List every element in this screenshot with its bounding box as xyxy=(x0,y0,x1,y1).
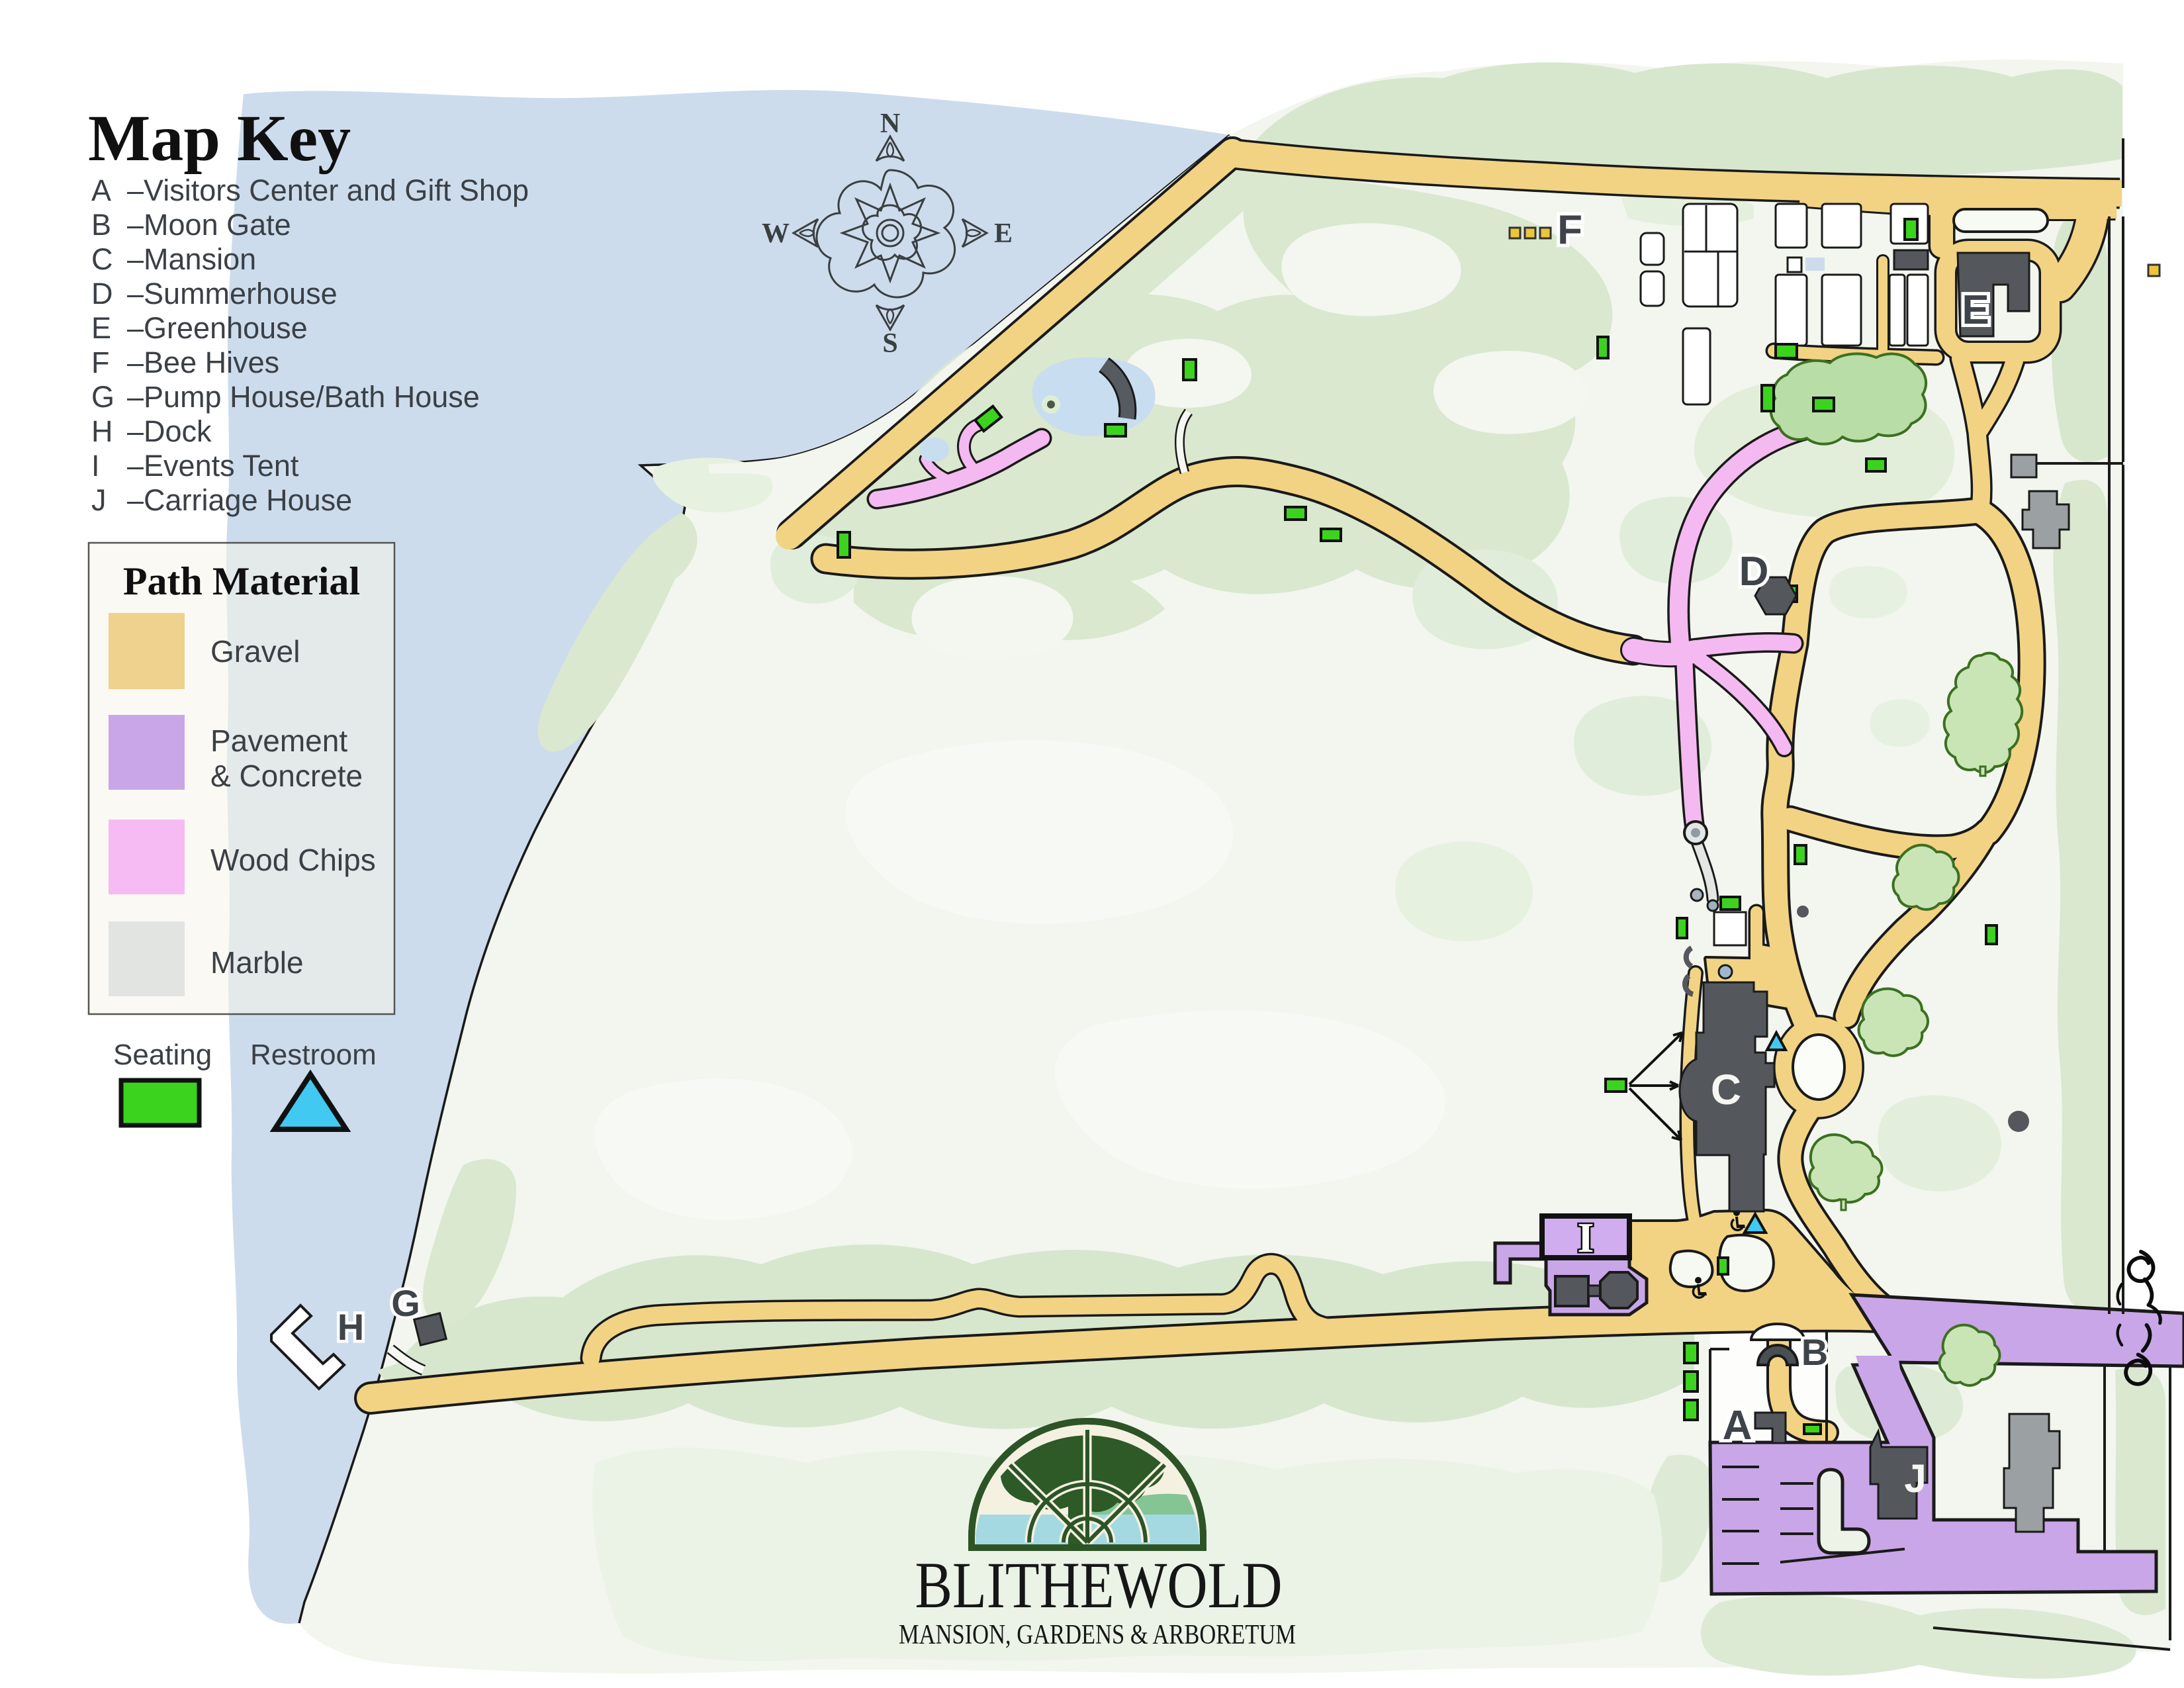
svg-text:Map Key: Map Key xyxy=(88,101,351,175)
svg-text:H: H xyxy=(338,1306,364,1348)
svg-text:–Summerhouse: –Summerhouse xyxy=(127,277,338,310)
svg-text:G: G xyxy=(91,380,114,414)
svg-text:–Mansion: –Mansion xyxy=(127,242,256,276)
svg-text:E: E xyxy=(1962,287,1989,333)
svg-text:–Moon Gate: –Moon Gate xyxy=(127,208,291,242)
svg-text:Gravel: Gravel xyxy=(210,634,300,669)
svg-text:–Dock: –Dock xyxy=(127,414,212,448)
svg-text:C: C xyxy=(91,242,113,276)
svg-text:A: A xyxy=(1723,1403,1752,1448)
svg-text:–Pump House/Bath House: –Pump House/Bath House xyxy=(127,380,480,414)
svg-text:J: J xyxy=(1904,1456,1926,1501)
svg-text:& Concrete: & Concrete xyxy=(210,759,363,793)
svg-text:B: B xyxy=(91,208,111,242)
svg-text:–Carriage House: –Carriage House xyxy=(127,483,352,517)
svg-text:E: E xyxy=(91,311,111,345)
svg-text:N: N xyxy=(880,109,900,139)
svg-text:Restroom: Restroom xyxy=(250,1039,377,1071)
svg-text:–Bee Hives: –Bee Hives xyxy=(127,346,279,379)
svg-text:D: D xyxy=(1739,549,1769,594)
svg-text:–Events Tent: –Events Tent xyxy=(127,449,299,483)
svg-text:MANSION, GARDENS & ARBORETUM: MANSION, GARDENS & ARBORETUM xyxy=(899,1620,1296,1650)
svg-text:–Visitors Center and Gift Shop: –Visitors Center and Gift Shop xyxy=(127,173,529,207)
svg-text:D: D xyxy=(91,277,113,310)
svg-text:C: C xyxy=(1711,1066,1741,1113)
svg-text:Wood Chips: Wood Chips xyxy=(210,843,376,877)
svg-text:Path Material: Path Material xyxy=(123,559,360,603)
svg-text:I: I xyxy=(91,449,100,483)
svg-text:–Greenhouse: –Greenhouse xyxy=(127,311,308,345)
svg-text:F: F xyxy=(91,346,110,379)
svg-text:S: S xyxy=(882,328,897,359)
svg-text:BLITHEWOLD: BLITHEWOLD xyxy=(915,1548,1283,1622)
svg-text:B: B xyxy=(1801,1331,1828,1373)
svg-text:F: F xyxy=(1557,207,1582,253)
svg-text:W: W xyxy=(762,218,790,249)
svg-text:Marble: Marble xyxy=(210,945,304,980)
svg-text:Pavement: Pavement xyxy=(210,724,347,758)
svg-text:J: J xyxy=(91,483,107,517)
svg-text:Seating: Seating xyxy=(113,1039,212,1071)
svg-text:G: G xyxy=(391,1282,420,1324)
svg-text:E: E xyxy=(994,218,1013,249)
svg-text:I: I xyxy=(1578,1214,1594,1261)
svg-text:H: H xyxy=(91,414,113,448)
svg-text:A: A xyxy=(91,173,111,207)
